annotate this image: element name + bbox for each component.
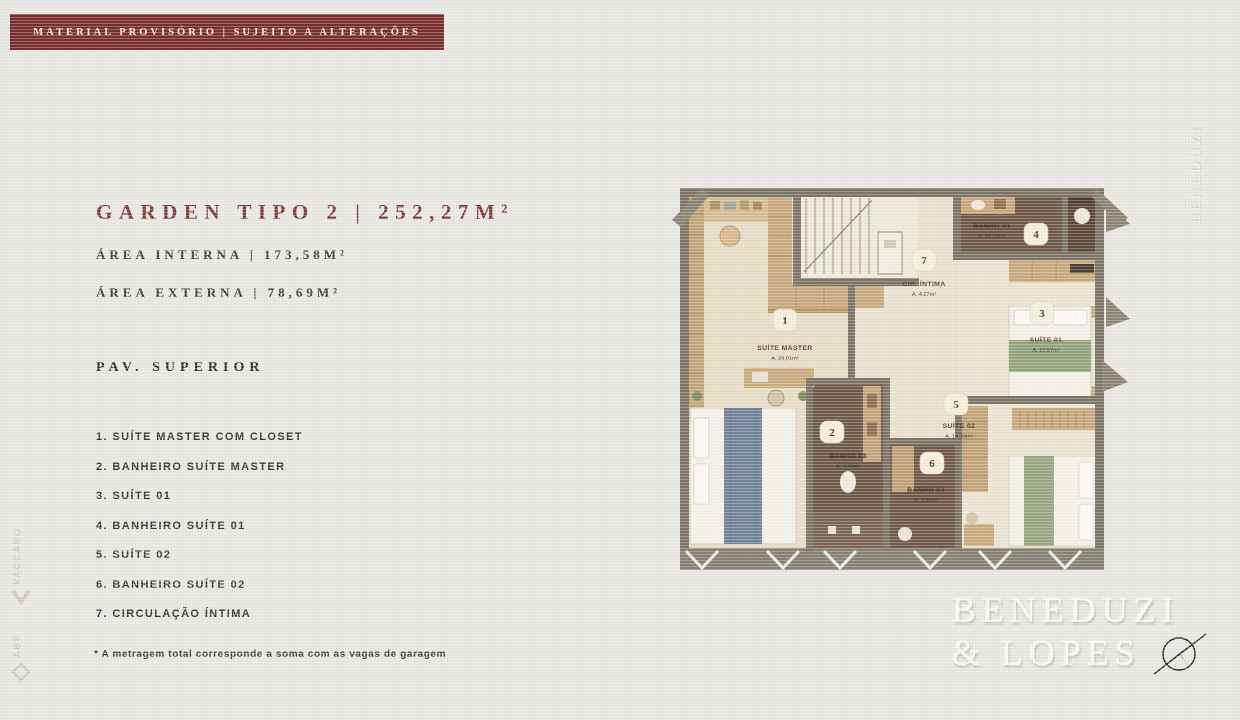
svg-text:A. 14,23m²: A. 14,23m² bbox=[945, 434, 972, 440]
page-title: GARDEN TIPO 2 | 252,27M² bbox=[96, 200, 514, 225]
svg-text:A. 4,27m²: A. 4,27m² bbox=[912, 292, 936, 298]
vertical-watermark-abf: ABF bbox=[12, 608, 23, 658]
legend-item-4: 4. BANHEIRO SUÍTE 01 bbox=[96, 512, 303, 542]
external-area-line: ÁREA EXTERNA | 78,69M² bbox=[96, 285, 341, 301]
door-swing-3 bbox=[1102, 360, 1128, 392]
door-swing-2 bbox=[1106, 297, 1130, 327]
diamond-icon bbox=[10, 662, 32, 682]
svg-text:SUÍTE 01: SUÍTE 01 bbox=[1030, 335, 1063, 344]
floor-label: PAV. SUPERIOR bbox=[96, 360, 264, 376]
svg-text:4: 4 bbox=[1033, 229, 1039, 241]
svg-text:5: 5 bbox=[953, 399, 959, 411]
compass-icon bbox=[1146, 618, 1216, 688]
svg-text:SUÍTE MASTER: SUÍTE MASTER bbox=[757, 343, 812, 352]
room-badge-3: 3 bbox=[1030, 302, 1054, 324]
svg-text:A. 5,99m²: A. 5,99m² bbox=[836, 464, 860, 470]
svg-text:SUÍTE 02: SUÍTE 02 bbox=[943, 421, 976, 430]
room-badge-7: 7 bbox=[912, 249, 936, 271]
legend-item-3: 3. SUÍTE 01 bbox=[96, 482, 303, 512]
svg-text:1: 1 bbox=[782, 315, 788, 327]
internal-area-line: ÁREA INTERNA | 173,58M² bbox=[96, 247, 348, 263]
svg-text:A. 3,99m²: A. 3,99m² bbox=[914, 498, 938, 504]
floor-plan: SUÍTE MASTER A. 29,01m² BANHO 03 A. 5,99… bbox=[672, 182, 1135, 592]
banner-text: MATERIAL PROVISÓRIO | SUJEITO A ALTERAÇÕ… bbox=[33, 27, 421, 38]
legend-item-2: 2. BANHEIRO SUÍTE MASTER bbox=[96, 453, 303, 483]
vertical-watermark-vaccaro: VACCARO bbox=[12, 505, 23, 585]
svg-text:7: 7 bbox=[921, 255, 927, 267]
chevron-icon bbox=[10, 588, 32, 608]
svg-text:6: 6 bbox=[929, 458, 935, 470]
room-badge-1: 1 bbox=[773, 309, 797, 331]
svg-text:BANHO 02: BANHO 02 bbox=[907, 487, 945, 494]
room-badge-5: 5 bbox=[944, 393, 968, 415]
room-badge-2: 2 bbox=[820, 421, 844, 443]
marketing-floorplan-page: { "banner": { "text": "MATERIAL PROVISÓR… bbox=[0, 0, 1240, 720]
svg-text:CIR. ÍNTIMA: CIR. ÍNTIMA bbox=[902, 279, 945, 288]
svg-text:BANHO 03: BANHO 03 bbox=[829, 453, 867, 460]
room-badge-4: 4 bbox=[1024, 223, 1048, 245]
legend-item-7: 7. CIRCULAÇÃO ÍNTIMA bbox=[96, 600, 303, 630]
footnote: * A metragem total corresponde a soma co… bbox=[94, 649, 446, 660]
svg-text:A. 10,57m²: A. 10,57m² bbox=[1032, 348, 1059, 354]
svg-text:2: 2 bbox=[829, 427, 835, 439]
provisional-material-banner: MATERIAL PROVISÓRIO | SUJEITO A ALTERAÇÕ… bbox=[10, 14, 444, 50]
legend-item-5: 5. SUÍTE 02 bbox=[96, 541, 303, 571]
room-badge-6: 6 bbox=[920, 452, 944, 474]
svg-text:BANHO 01: BANHO 01 bbox=[973, 223, 1011, 230]
svg-text:A. 04,09m²: A. 04,09m² bbox=[978, 234, 1005, 240]
svg-text:A. 29,01m²: A. 29,01m² bbox=[771, 356, 798, 362]
legend-item-6: 6. BANHEIRO SUÍTE 02 bbox=[96, 571, 303, 601]
room-legend-list: 1. SUÍTE MASTER COM CLOSET 2. BANHEIRO S… bbox=[96, 423, 303, 630]
svg-text:3: 3 bbox=[1039, 308, 1045, 320]
vertical-watermark-right: BENEDUZI bbox=[1188, 84, 1205, 224]
legend-item-1: 1. SUÍTE MASTER COM CLOSET bbox=[96, 423, 303, 453]
